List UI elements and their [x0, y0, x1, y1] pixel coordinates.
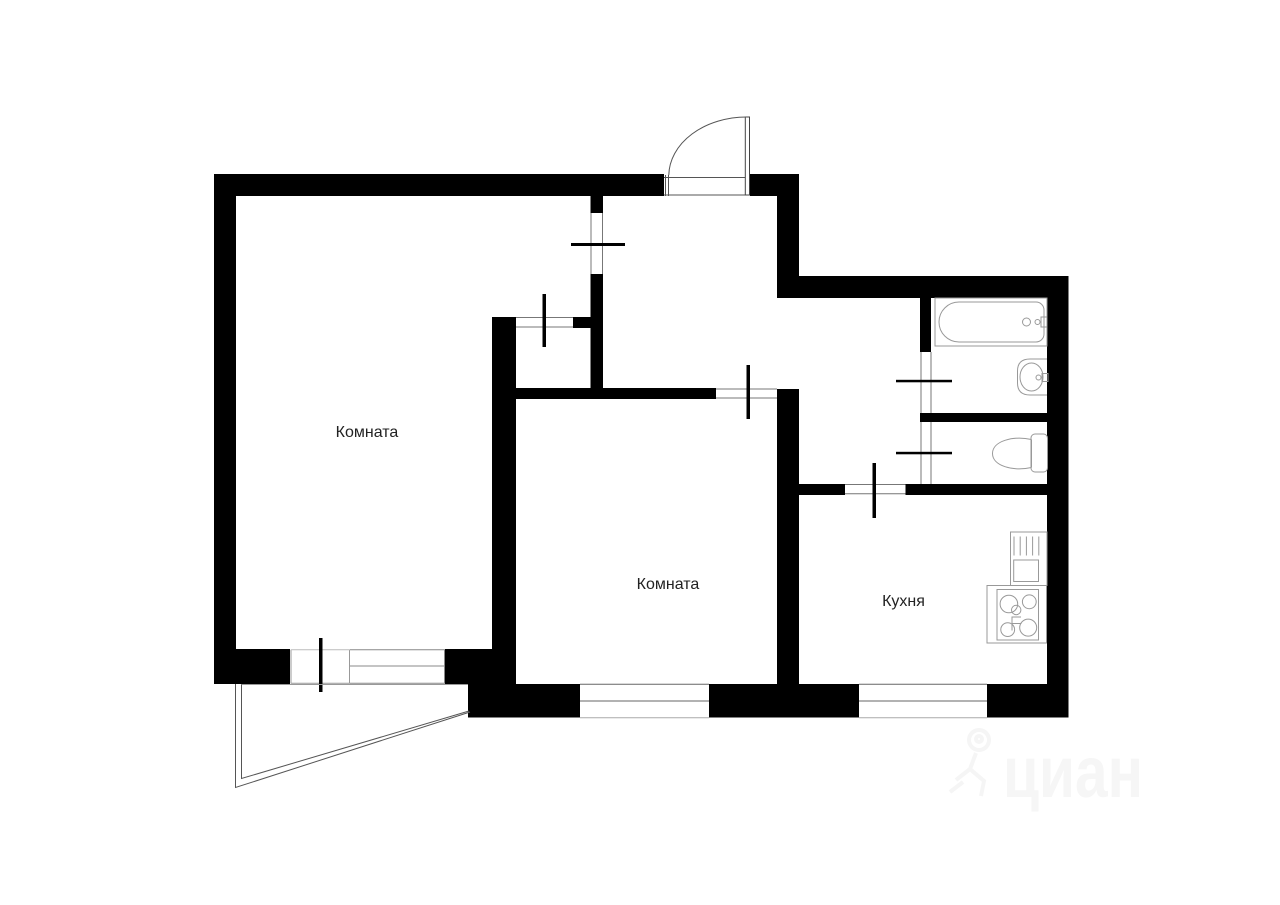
svg-text:Кухня: Кухня [882, 593, 925, 610]
svg-text:Комната: Комната [637, 576, 700, 593]
svg-text:циан: циан [1003, 733, 1143, 813]
svg-text:Комната: Комната [336, 424, 399, 441]
